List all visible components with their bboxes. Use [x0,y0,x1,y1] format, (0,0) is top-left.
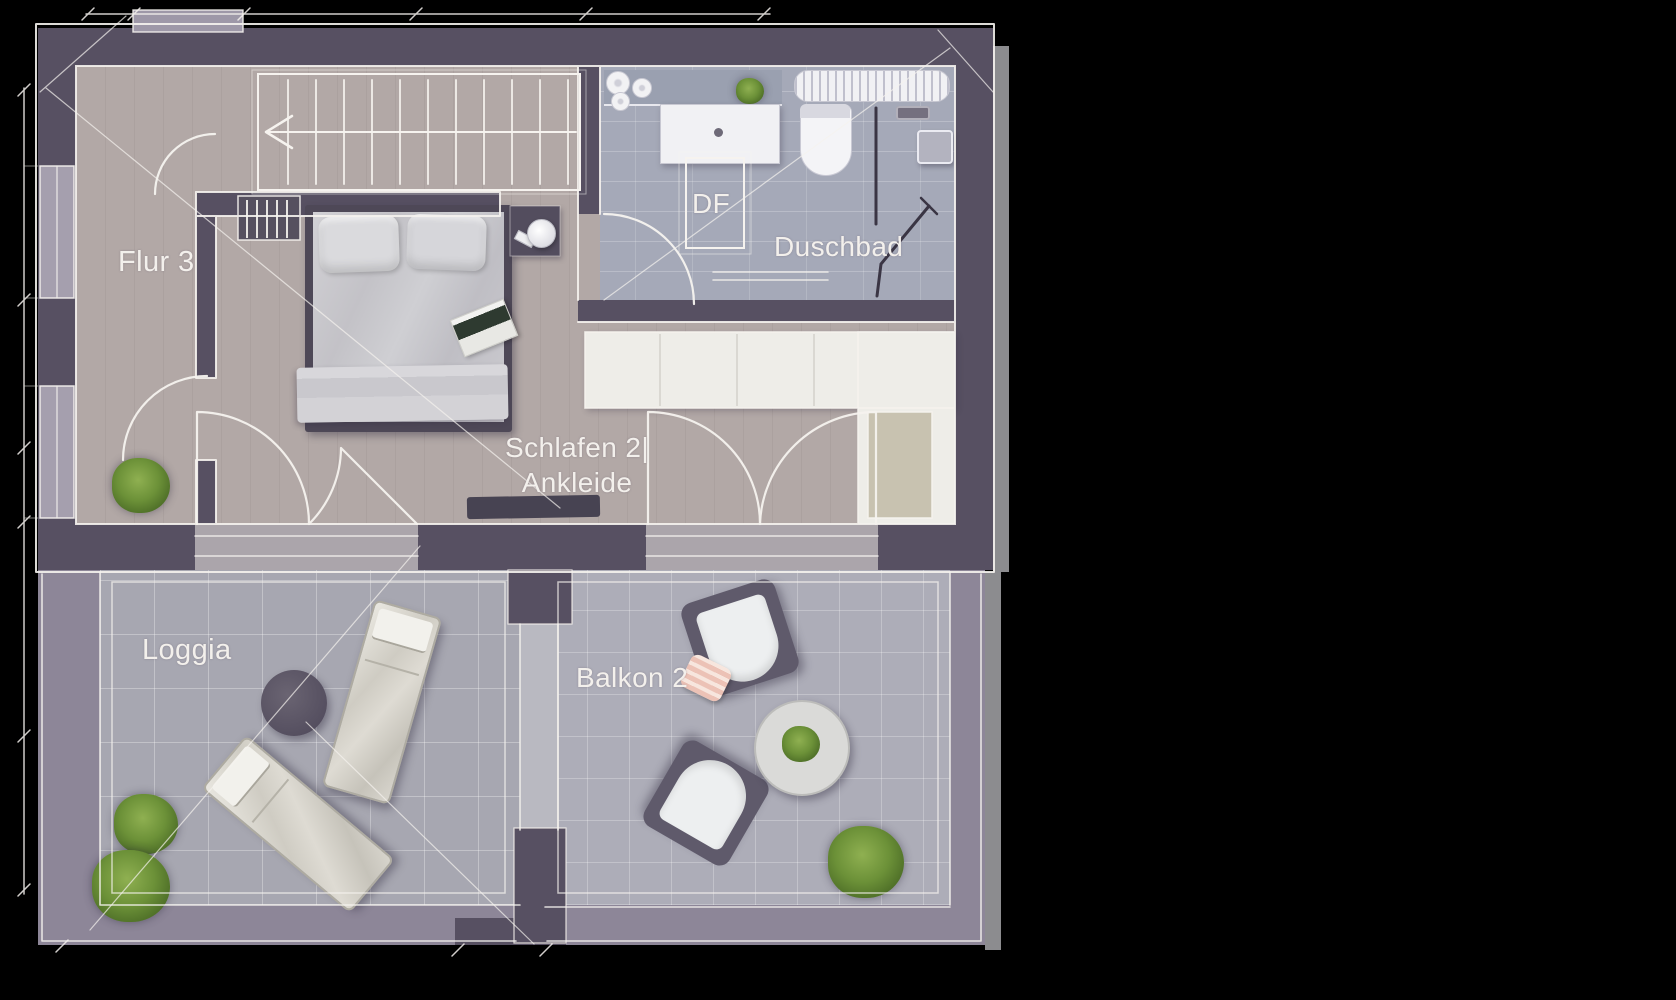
drop-shadow-right [993,46,1009,572]
loggia-side-table [261,670,327,736]
room-label-duschbad: Duschbad [774,231,903,263]
shower-mixer-icon [896,106,930,120]
faucet-icon [714,128,723,137]
plant-icon [114,794,178,854]
plant-icon [828,826,904,898]
room-label-schlafen-line1: Schlafen 2| [505,432,649,463]
drop-shadow-right-balcony [985,572,1001,950]
plant-icon [112,458,170,513]
wall-right [955,28,993,570]
room-label-loggia: Loggia [142,634,232,667]
wall-partition-upper [196,192,216,378]
door-opening-bath [578,214,600,302]
room-label-balkon: Balkon 2 [576,662,688,694]
divider-pier-arm [455,918,566,945]
wall-top [38,28,993,66]
bed-blanket [297,364,509,423]
lamp-icon [527,219,556,248]
bed-pillow [406,214,487,272]
door-opening-balcony [646,524,878,570]
room-label-df: DF [692,188,730,220]
towel-radiator [794,70,950,102]
plant-icon [92,850,170,922]
toilet-tank [800,104,850,118]
room-label-schlafen-line2: Ankleide [522,467,633,498]
table-plant-icon [782,726,820,762]
radiator-icon [238,196,300,240]
lounger-headrest [371,608,434,654]
divider-pier-top [508,570,572,624]
window-left-upper [40,166,74,298]
lounger-seam [365,659,419,676]
door-opening-loggia [195,524,418,570]
lounger-seam [252,779,290,823]
room-label-flur: Flur 3 [118,246,195,279]
parapet-balcony-bottom [545,905,985,945]
window-top [133,10,243,32]
parapet-balcony-right [950,570,985,945]
floor-plan: Flur 3 DF Duschbad Schlafen 2| Ankleide … [0,0,1012,1000]
towel-roll-icon [632,78,652,98]
room-label-schlafen: Schlafen 2| Ankleide [487,430,667,500]
towel-roll-icon [611,92,630,111]
wall-bath-bottom [578,300,955,322]
bath-plant-icon [736,78,764,104]
divider-railing [520,624,558,830]
parapet-loggia-left [38,570,100,945]
wardrobe-inset [868,412,932,518]
window-left-lower [40,386,74,518]
shower-control [917,130,953,164]
wall-partition-lower [196,460,216,524]
bed-pillow [318,215,400,274]
